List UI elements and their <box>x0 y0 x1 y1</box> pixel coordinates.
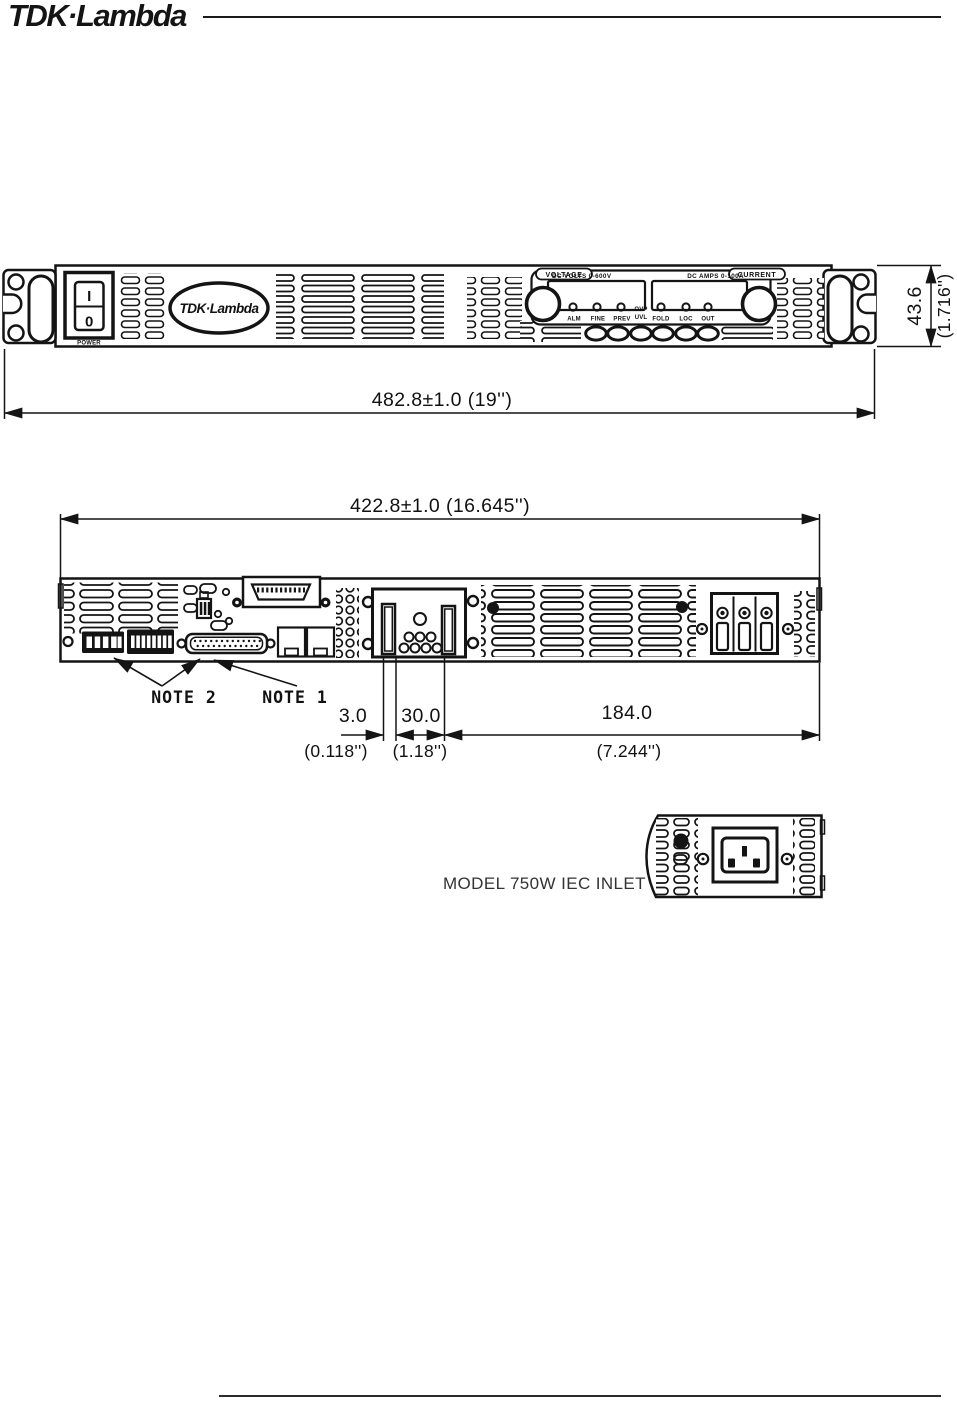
button-2 <box>608 327 629 340</box>
front-width-dimension: 482.8±1.0 (19'') <box>5 349 875 419</box>
dim-30mm-text: 30.0 <box>401 705 441 727</box>
button-6 <box>698 327 719 340</box>
rear-vent-center <box>481 585 696 657</box>
front-vent-grille-right <box>777 278 824 339</box>
front-height-dimension: 43.6 (1.716'') <box>877 266 954 347</box>
front-width-text: 482.8±1.0 (19'') <box>372 389 513 411</box>
button-5 <box>676 327 697 340</box>
note1-leader <box>214 660 297 686</box>
front-logo-text: TDK·Lambda <box>180 301 260 316</box>
fine-label: FINE <box>591 317 605 323</box>
fold-label: FOLD <box>652 317 670 323</box>
rear-vent-left <box>64 583 178 634</box>
left-ear-notch <box>3 295 21 314</box>
rear-width-dimension: 422.8±1.0 (16.645'') <box>61 495 820 578</box>
amps-display <box>652 281 747 310</box>
power-on-glyph: I <box>87 288 91 305</box>
uvl-label: UVL <box>635 315 648 321</box>
datasheet-page: TDK·Lambda <box>0 0 957 1423</box>
rear-hole-grid <box>336 588 359 658</box>
inlet-vent-left <box>656 818 698 896</box>
dim-30mm-inches: (1.18'') <box>393 741 448 761</box>
inlet-caption: MODEL 750W IEC INLET <box>443 874 646 893</box>
button-4 <box>653 327 674 340</box>
volts-meter-label: DC VOLTS 0-600V <box>552 273 612 280</box>
front-height-text-in: (1.716'') <box>934 274 954 339</box>
gpib-connector <box>243 577 320 607</box>
ac-input-terminal <box>697 594 793 654</box>
rear-width-text: 422.8±1.0 (16.645'') <box>350 495 530 517</box>
right-ear-notch <box>858 295 876 314</box>
prev-label: PREV <box>613 317 630 323</box>
note2-label: NOTE 2 <box>151 688 217 707</box>
inlet-screw-black <box>674 834 689 849</box>
voltage-knob <box>527 288 560 321</box>
front-height-text-mm: 43.6 <box>904 286 926 326</box>
ovp-label: OVP <box>634 307 647 313</box>
rear-view: 422.8±1.0 (16.645'') <box>59 495 822 761</box>
amps-meter-label: DC AMPS 0-100A <box>687 273 744 280</box>
dim-184mm-inches: (7.244'') <box>597 741 662 761</box>
rear-vent-right <box>794 591 815 657</box>
dim-3mm-text: 3.0 <box>339 705 367 727</box>
output-connector <box>363 589 478 657</box>
left-rack-ear <box>3 270 56 343</box>
rear-screw-left <box>487 602 499 614</box>
dim-3mm-inches: (0.118'') <box>304 741 368 761</box>
front-vent-grille-left <box>117 273 166 339</box>
iec-socket <box>713 828 777 882</box>
footer-rule <box>219 1395 941 1397</box>
dip-connector <box>127 630 174 655</box>
button-3 <box>631 327 652 340</box>
front-logo-oval: TDK·Lambda <box>170 283 268 333</box>
power-off-glyph: 0 <box>85 314 93 331</box>
out-label: OUT <box>701 317 714 323</box>
current-knob <box>743 288 776 321</box>
rear-screw-right <box>676 601 688 613</box>
volts-display <box>548 281 645 310</box>
loc-label: LOC <box>679 317 693 323</box>
db25-connector <box>178 634 275 653</box>
front-vent-under-current-knob <box>716 324 773 340</box>
button-1 <box>586 327 607 340</box>
iec-inlet-detail: MODEL 750W IEC INLET <box>443 816 825 898</box>
dim-184mm-text: 184.0 <box>602 702 653 724</box>
power-switch: I 0 POWER <box>65 273 113 347</box>
alm-label: ALM <box>567 317 581 323</box>
inlet-vent-right <box>793 818 815 897</box>
front-vent-grille-center <box>276 274 444 339</box>
note2-leader-2 <box>162 659 200 686</box>
note1-label: NOTE 1 <box>262 688 328 707</box>
power-label: POWER <box>77 341 101 347</box>
rear-bottom-dimensions: 3.0 30.0 184.0 (0.118'') (1.18'') (7.244… <box>304 658 819 761</box>
front-vent-grille-mid <box>467 277 522 339</box>
rear-notes: NOTE 2 NOTE 1 <box>114 658 328 707</box>
outline-drawing: I 0 POWER TDK·Lambda VOLTAGE C <box>0 0 957 1423</box>
rj45-jacks <box>278 628 334 657</box>
right-rack-ear <box>824 270 877 343</box>
front-view: I 0 POWER TDK·Lambda VOLTAGE C <box>3 266 954 420</box>
